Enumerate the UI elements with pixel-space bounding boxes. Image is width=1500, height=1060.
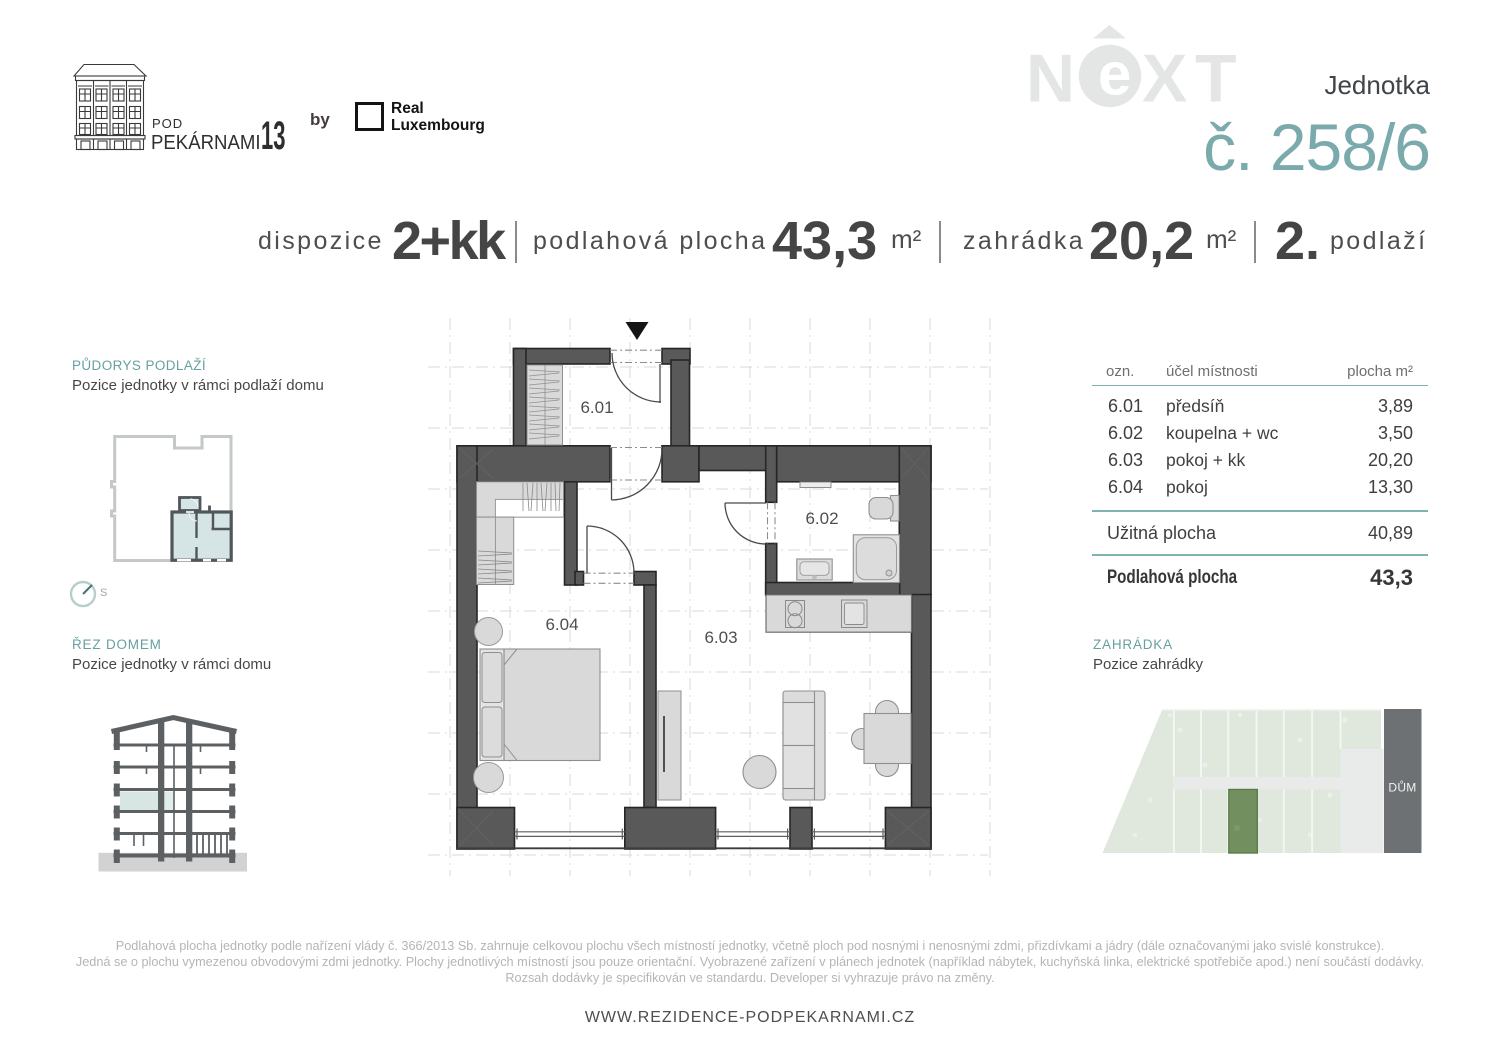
svg-text:e: e xyxy=(1098,41,1131,108)
svg-text:S: S xyxy=(100,587,107,599)
svg-text:DŮM: DŮM xyxy=(1388,780,1416,795)
svg-text:6.04: 6.04 xyxy=(545,615,578,634)
svg-text:X: X xyxy=(1142,41,1187,113)
svg-text:6.03: 6.03 xyxy=(704,628,737,647)
svg-text:6.01: 6.01 xyxy=(580,398,613,417)
svg-text:6.02: 6.02 xyxy=(805,509,838,528)
svg-text:N: N xyxy=(1026,41,1075,113)
